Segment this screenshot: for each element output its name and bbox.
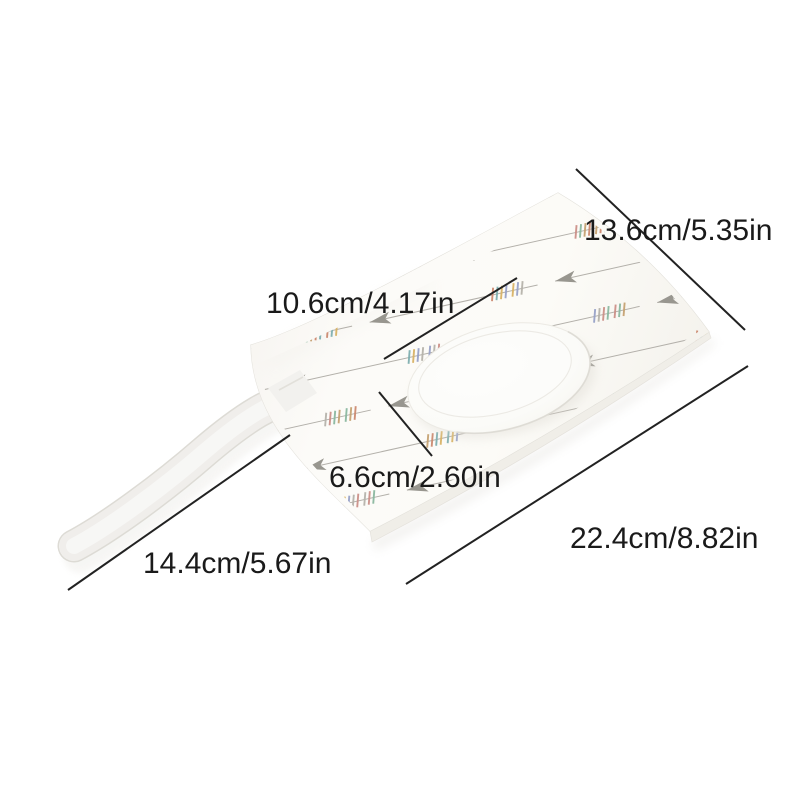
svg-text:22.4cm/8.82in: 22.4cm/8.82in: [570, 522, 758, 555]
svg-text:14.4cm/5.67in: 14.4cm/5.67in: [143, 547, 331, 580]
svg-text:10.6cm/4.17in: 10.6cm/4.17in: [266, 287, 454, 320]
svg-text:6.6cm/2.60in: 6.6cm/2.60in: [329, 461, 501, 494]
svg-text:13.6cm/5.35in: 13.6cm/5.35in: [584, 214, 772, 247]
